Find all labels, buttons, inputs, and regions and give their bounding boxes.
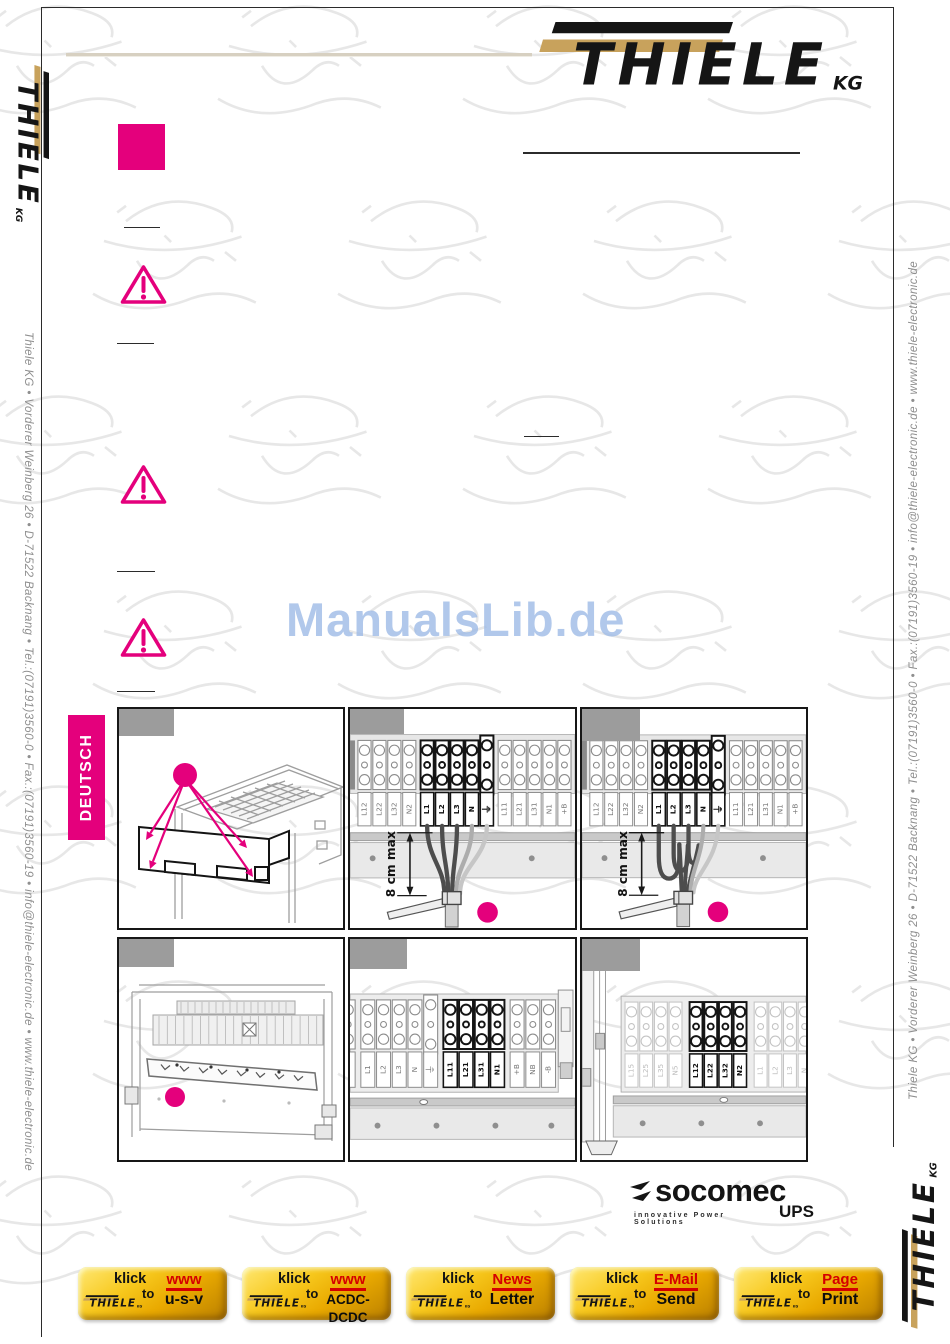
callout-dot xyxy=(173,763,197,787)
diagram-terminal-wiring-looped: L12L22L32N2L1L2L3N⏚L11L21L31N1+B8 cm max xyxy=(582,709,806,928)
warning-triangle-icon xyxy=(119,463,168,506)
step-number-box xyxy=(582,709,640,741)
terminal-label: N2 xyxy=(350,1065,352,1075)
terminal-label: L21 xyxy=(746,802,755,815)
terminal-cell: N xyxy=(465,740,478,825)
terminal-cell: N1 xyxy=(543,740,556,825)
terminal-cell: ⏚ xyxy=(712,736,725,826)
terminal-label: L2 xyxy=(379,1065,388,1074)
terminal-cell: L1 xyxy=(421,740,434,825)
terminal-cell: L1 xyxy=(361,1000,375,1087)
terminal-label: +B xyxy=(559,804,568,815)
terminal-label: L21 xyxy=(515,802,524,815)
terminal-cell: -B xyxy=(542,1000,556,1087)
terminal-label: N1 xyxy=(492,1064,501,1075)
terminal-cell: L11 xyxy=(730,741,743,826)
diagram-cabinet-interior xyxy=(119,939,343,1160)
terminal-label: L2 xyxy=(437,804,446,814)
terminal-label: N1 xyxy=(776,804,785,814)
terminal-label: L22 xyxy=(374,802,383,815)
manualslib-watermark: ManualsLib.de xyxy=(286,592,625,647)
section-rule-1 xyxy=(124,227,160,228)
terminal-cell: N2 xyxy=(350,1000,355,1087)
terminal-label: L2 xyxy=(770,1066,779,1075)
klick-button-www-usv[interactable]: klick to www u-s-v xyxy=(78,1267,227,1320)
terminal-label: L31 xyxy=(530,802,539,815)
terminal-cell: L31 xyxy=(475,1000,489,1087)
terminal-cell: L25 xyxy=(640,1002,653,1087)
socomec-logo: socomec innovative Power Solutions UPS xyxy=(630,1177,814,1225)
contact-info-right: Thiele KG • Vorderer Weinberg 26 • D-715… xyxy=(908,140,920,1100)
terminal-label: L31 xyxy=(761,802,770,815)
button-red-word: Page xyxy=(822,1271,858,1291)
terminal-cell: N5 xyxy=(669,1002,682,1087)
terminal-label: N5 xyxy=(671,1065,680,1075)
thiele-mini-logo xyxy=(246,1294,310,1309)
terminal-cell: N xyxy=(798,1002,806,1087)
terminal-cell: L12 xyxy=(358,740,371,825)
callout-dot xyxy=(165,1087,185,1107)
terminal-cell: ⏚ xyxy=(424,995,438,1087)
button-black-word: ACDC- xyxy=(326,1292,370,1307)
terminal-cell: L3 xyxy=(450,740,463,825)
terminal-cell: L3 xyxy=(682,741,695,826)
terminal-label: L25 xyxy=(641,1063,650,1077)
terminal-cell: L3 xyxy=(392,1000,406,1087)
section-rule-2 xyxy=(117,343,154,344)
terminal-label: L1 xyxy=(363,1065,372,1074)
terminal-cell: N2 xyxy=(403,740,416,825)
thiele-mini-logo xyxy=(410,1294,474,1309)
page-right-rule xyxy=(893,7,894,1147)
terminal-label: L11 xyxy=(731,802,740,815)
terminal-cell: L22 xyxy=(605,741,618,826)
terminal-label: L11 xyxy=(445,1062,454,1077)
terminal-cell: L35 xyxy=(654,1002,667,1087)
figure-output-terminals: N2L1L2L3N⏚L11L21L31N1+BNB-B xyxy=(348,937,577,1162)
callout-dot xyxy=(477,902,498,923)
contact-info-left: Thiele KG • Vorderer Weinberg 26 • D-715… xyxy=(22,332,34,1222)
terminal-label: N xyxy=(698,806,707,812)
terminal-cell: L12 xyxy=(590,741,603,826)
dimension-label: 8 cm max xyxy=(384,831,398,897)
klick-label: klick xyxy=(278,1271,310,1287)
socomec-ups: UPS xyxy=(779,1207,814,1217)
dimension-label: 8 cm max xyxy=(616,831,630,897)
button-black-word: u-s-v xyxy=(165,1291,203,1308)
terminal-cell: L21 xyxy=(459,1000,473,1087)
figure-mains-wiring: L12L22L32N2L1L2L3N⏚L11L21L31N1+B8 cm max xyxy=(348,707,577,930)
terminal-label: L32 xyxy=(389,802,398,815)
terminal-label: L15 xyxy=(626,1063,635,1077)
terminal-label: N2 xyxy=(735,1065,744,1076)
terminal-label: L3 xyxy=(785,1066,794,1075)
socomec-tagline: innovative Power Solutions xyxy=(634,1212,773,1226)
section-rule-4 xyxy=(117,691,155,692)
section-rule-3 xyxy=(117,571,155,572)
terminal-cell: L31 xyxy=(759,741,772,826)
thiele-mini-logo xyxy=(574,1294,638,1309)
terminal-label: L3 xyxy=(452,804,461,814)
terminal-cell: L11 xyxy=(498,740,511,825)
terminal-label: L3 xyxy=(684,804,693,814)
terminal-cell: +B xyxy=(558,740,571,825)
terminal-cell: L32 xyxy=(719,1002,732,1087)
terminal-label: +B xyxy=(512,1064,521,1075)
terminal-label: L11 xyxy=(500,802,509,815)
terminal-label: L12 xyxy=(591,802,600,815)
figure-bypass-terminals: L15L25L35N5L12L22L32N2L1L2L3N⏚L11 xyxy=(580,937,808,1162)
terminal-cell: L1 xyxy=(754,1002,767,1087)
terminal-cell: +B xyxy=(789,741,802,826)
terminal-cell: L3 xyxy=(784,1002,797,1087)
terminal-label: -B xyxy=(544,1066,553,1073)
button-red-word: News xyxy=(492,1271,531,1291)
terminal-cell: L21 xyxy=(744,741,757,826)
figure-cabinet-interior xyxy=(117,937,345,1162)
terminal-label: NB xyxy=(528,1064,537,1075)
terminal-cell: N1 xyxy=(774,741,787,826)
step-number-box xyxy=(119,709,174,736)
terminal-label: N xyxy=(467,806,476,812)
terminal-cell: L31 xyxy=(528,740,541,825)
terminal-cell: L1 xyxy=(652,741,665,826)
button-red-word: www xyxy=(166,1271,201,1291)
terminal-cell: L32 xyxy=(388,740,401,825)
figure-cover-removal xyxy=(117,707,345,930)
klick-label: klick xyxy=(442,1271,474,1287)
button-black-word: Letter xyxy=(490,1291,534,1308)
terminal-cell: L22 xyxy=(373,740,386,825)
terminal-cell: L2 xyxy=(377,1000,391,1087)
terminal-cell: L11 xyxy=(443,1000,457,1087)
brand-logo-left xyxy=(15,62,49,232)
terminal-label: L2 xyxy=(669,804,678,814)
terminal-label: N2 xyxy=(404,804,413,814)
terminal-label: L32 xyxy=(720,1063,729,1078)
terminal-label: L1 xyxy=(422,804,431,814)
step-number-box xyxy=(350,939,407,969)
terminal-label: L12 xyxy=(359,802,368,815)
terminal-label: L12 xyxy=(691,1063,700,1078)
terminal-cell: ⏚ xyxy=(480,736,493,826)
socomec-name: socomec xyxy=(655,1177,786,1205)
terminal-label: ⏚ xyxy=(425,1065,437,1075)
button-black-word: Print xyxy=(822,1291,858,1308)
socomec-chevron-icon xyxy=(630,1181,652,1201)
diagram-cover-removal xyxy=(119,709,343,928)
klick-button-www-acdc-dcdc[interactable]: klick to www ACDC- DCDC xyxy=(242,1267,391,1320)
language-tab-deutsch: DEUTSCH xyxy=(68,715,105,840)
terminal-cell: L15 xyxy=(625,1002,638,1087)
warning-triangle-icon xyxy=(119,616,168,659)
terminal-label: L31 xyxy=(477,1062,486,1077)
terminal-cell: L2 xyxy=(769,1002,782,1087)
terminal-cell: N xyxy=(408,1000,422,1087)
brand-logo-bottom-right xyxy=(902,1152,938,1332)
button-red-word: www xyxy=(330,1271,365,1291)
terminal-label: L3 xyxy=(394,1065,403,1074)
step-number-box xyxy=(350,709,404,734)
diagram-output-terminals: N2L1L2L3N⏚L11L21L31N1+BNB-B xyxy=(350,939,575,1160)
terminal-cell: L22 xyxy=(704,1002,717,1087)
terminal-cell: N xyxy=(697,741,710,826)
terminal-cell: L2 xyxy=(667,741,680,826)
button-black-word: Send xyxy=(656,1291,695,1308)
terminal-label: L21 xyxy=(461,1062,470,1077)
brand-logo-top xyxy=(532,22,884,92)
terminal-cell: L12 xyxy=(690,1002,703,1087)
terminal-label: N xyxy=(800,1068,806,1073)
terminal-label: N xyxy=(410,1067,419,1073)
warning-triangle-icon xyxy=(119,263,168,306)
step-number-box xyxy=(119,939,174,967)
terminal-cell: L2 xyxy=(435,740,448,825)
terminal-cell: N1 xyxy=(490,1000,504,1087)
terminal-label: +B xyxy=(791,804,800,815)
klick-button-email-send[interactable]: klick to E-Mail Send xyxy=(570,1267,719,1320)
button-red-word: E-Mail xyxy=(654,1271,698,1291)
terminal-cell: L32 xyxy=(620,741,633,826)
terminal-label: L1 xyxy=(654,804,663,814)
thiele-mini-logo xyxy=(82,1294,146,1309)
terminal-label: L22 xyxy=(606,802,615,815)
terminal-label: L35 xyxy=(656,1063,665,1077)
klick-label: klick xyxy=(770,1271,802,1287)
callout-dot xyxy=(708,902,729,923)
klick-label: klick xyxy=(606,1271,638,1287)
terminal-cell: NB xyxy=(526,1000,540,1087)
terminal-label: ⏚ xyxy=(481,804,493,814)
step-number-box xyxy=(582,939,640,971)
terminal-label: L22 xyxy=(706,1063,715,1078)
diagram-bypass-terminals: L15L25L35N5L12L22L32N2L1L2L3N⏚L11 xyxy=(582,939,806,1160)
section-rule-mid xyxy=(524,436,559,437)
page-top-rule xyxy=(41,7,893,8)
terminal-label: L32 xyxy=(621,802,630,815)
terminal-cell: +B xyxy=(510,1000,524,1087)
terminal-cell: L21 xyxy=(513,740,526,825)
terminal-cell: N2 xyxy=(734,1002,747,1087)
terminal-label: N1 xyxy=(545,804,554,814)
terminal-label: ⏚ xyxy=(712,804,724,814)
thiele-mini-logo xyxy=(738,1294,802,1309)
terminal-label: N2 xyxy=(636,804,645,814)
header-rule xyxy=(66,53,532,57)
terminal-label: L1 xyxy=(756,1066,765,1075)
klick-label: klick xyxy=(114,1271,146,1287)
diagram-terminal-wiring-straight: L12L22L32N2L1L2L3N⏚L11L21L31N1+B8 cm max xyxy=(350,709,575,928)
title-underline xyxy=(523,152,800,154)
klick-button-newsletter[interactable]: klick to News Letter xyxy=(406,1267,555,1320)
terminal-cell: N2 xyxy=(634,741,647,826)
button-black-word-2: DCDC xyxy=(329,1310,368,1325)
figure-mains-wiring-looped: L12L22L32N2L1L2L3N⏚L11L21L31N1+B8 cm max xyxy=(580,707,808,930)
klick-button-page-print[interactable]: klick to Page Print xyxy=(734,1267,883,1320)
section-marker-square xyxy=(118,124,165,170)
